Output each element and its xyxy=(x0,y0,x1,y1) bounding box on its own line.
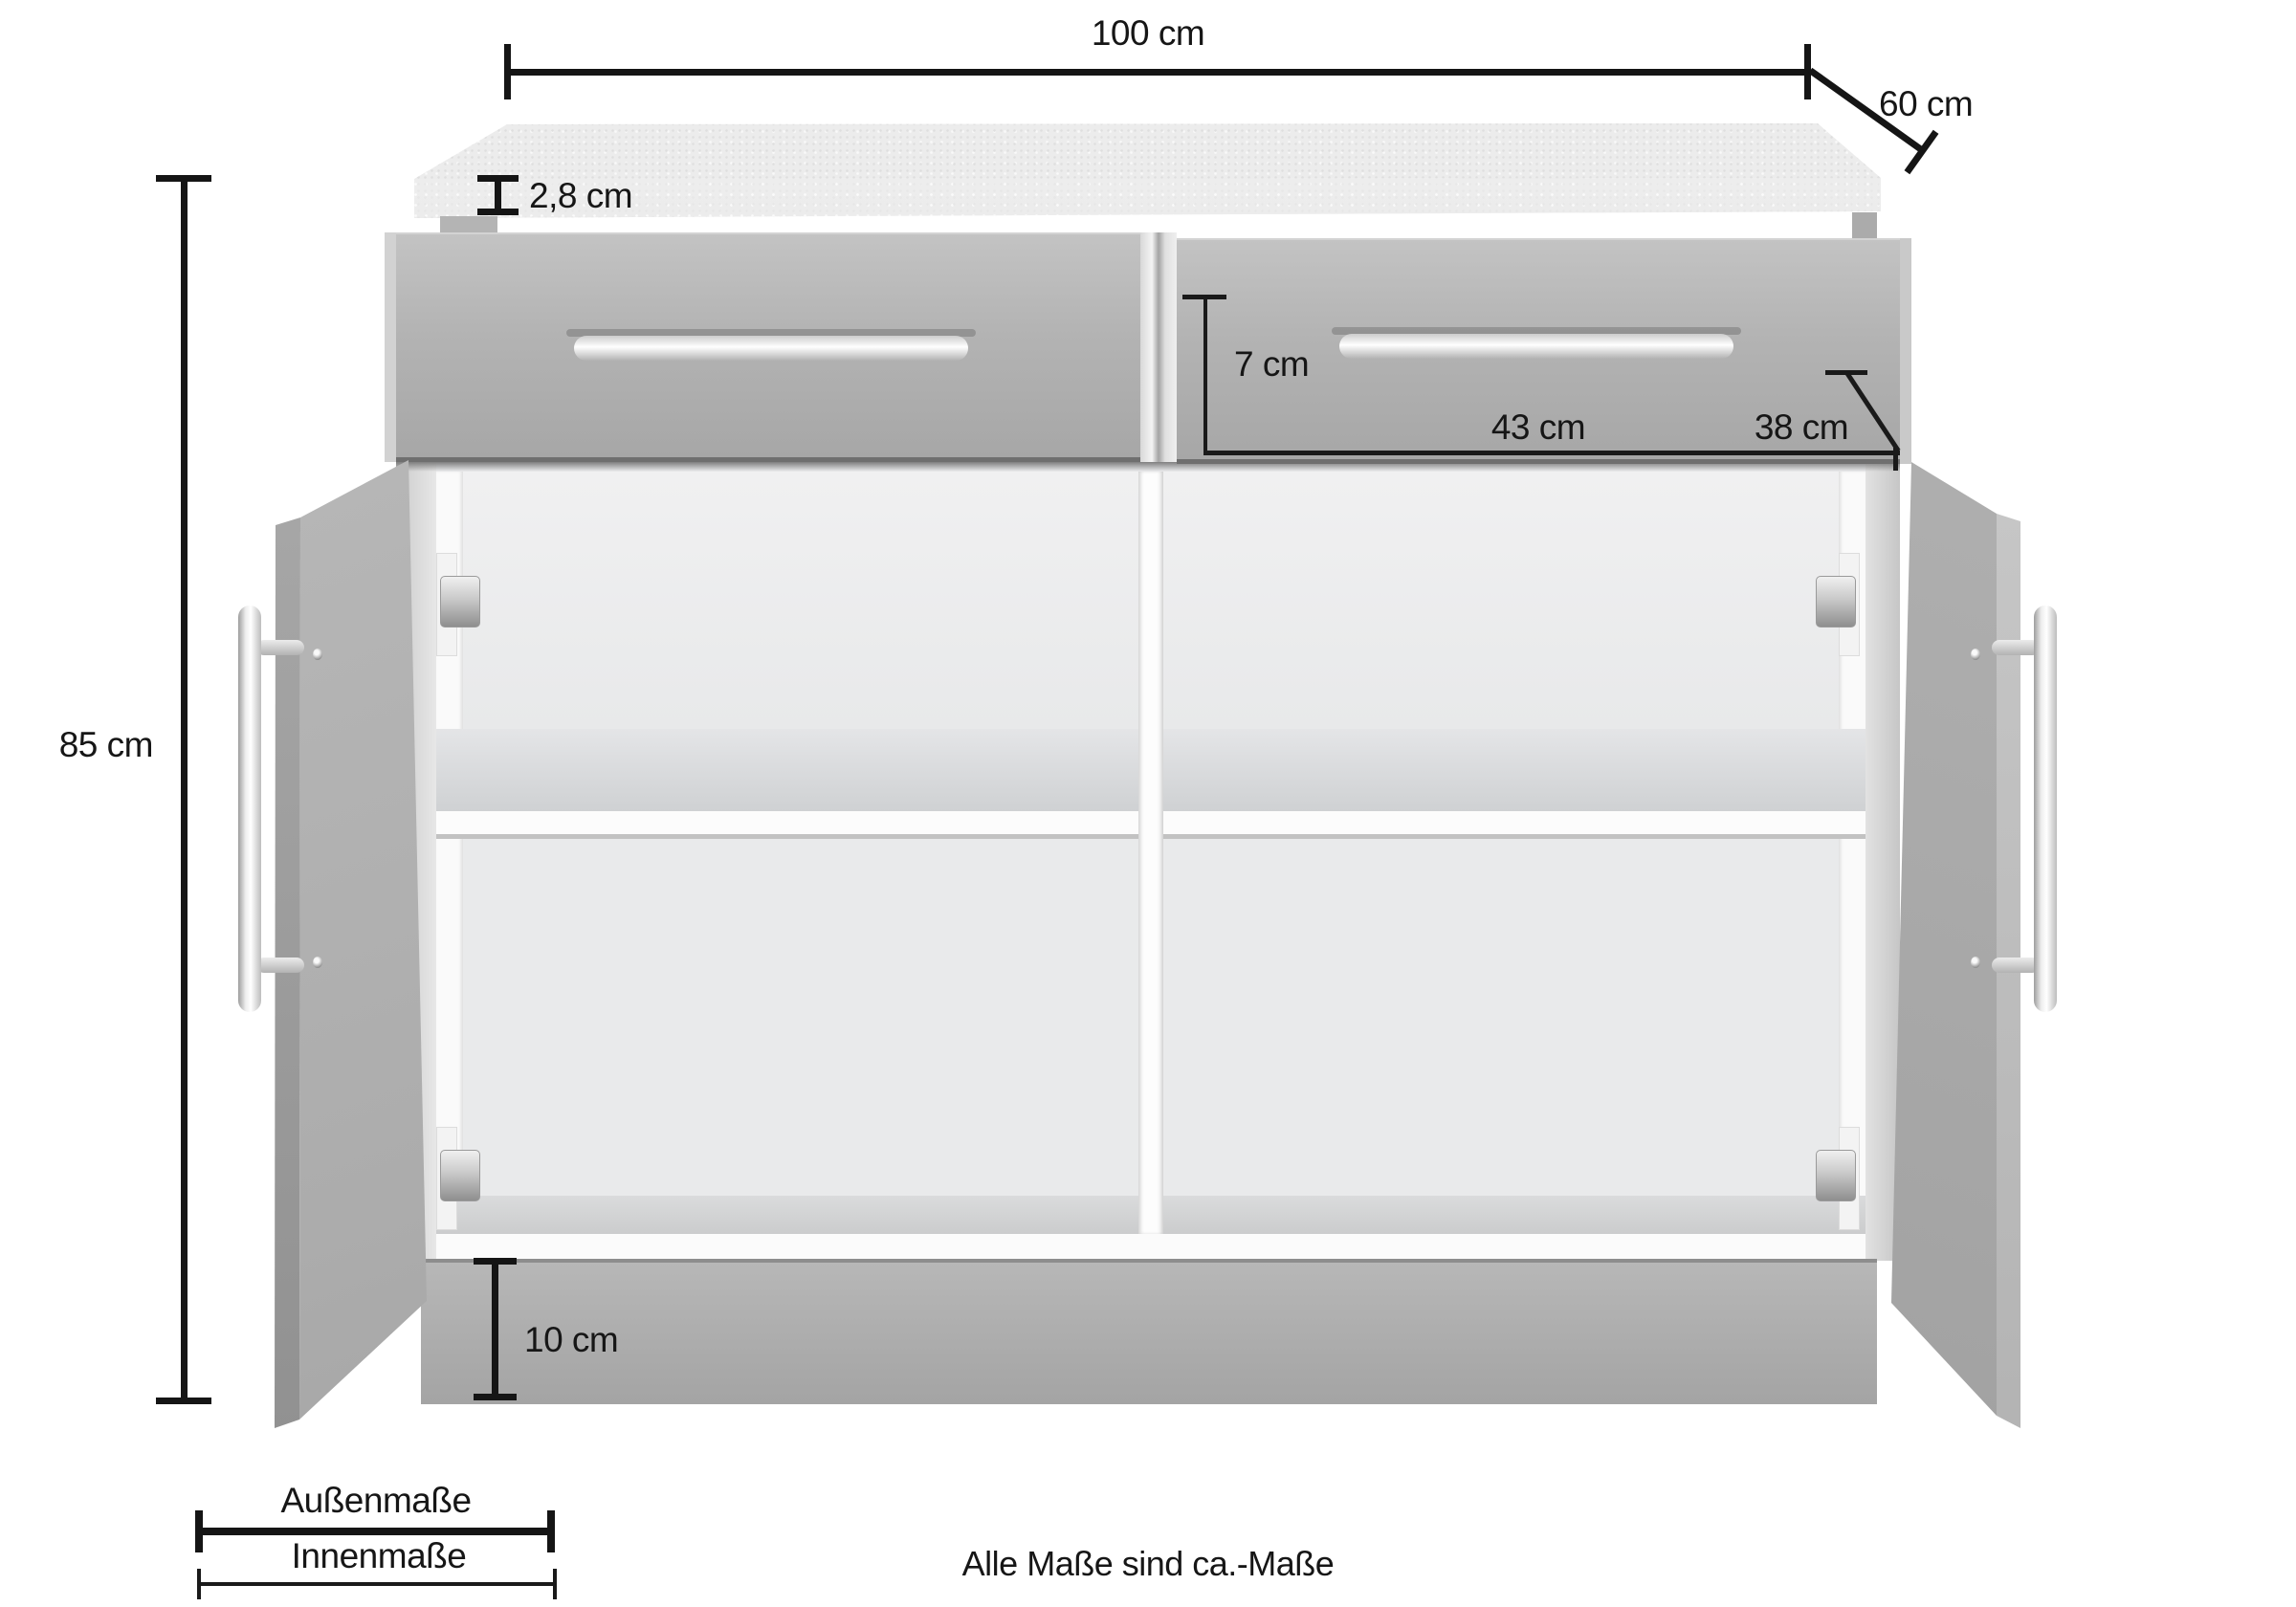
door-handle-stub-left-upper xyxy=(256,640,304,655)
legend-inner-line xyxy=(197,1582,557,1586)
dim-label-depth: 60 cm xyxy=(1879,84,1973,124)
door-handle-stub-right-upper xyxy=(1992,640,2040,655)
dim-tick-drawer-depth-top xyxy=(1825,370,1867,375)
legend-outer-label: Außenmaße xyxy=(201,1481,551,1521)
door-handle-right xyxy=(2034,605,2057,1012)
dim-cap-plinth-top xyxy=(474,1258,517,1265)
dim-label-plinth: 10 cm xyxy=(524,1320,618,1360)
hinge-right-upper xyxy=(1816,576,1856,627)
dim-label-width: 100 cm xyxy=(1052,13,1244,54)
dim-line-width xyxy=(507,69,1810,76)
door-handle-left xyxy=(238,605,261,1012)
dim-line-drawer-width xyxy=(1203,451,1900,455)
dim-line-height xyxy=(181,178,188,1404)
drawer-gap xyxy=(1140,232,1177,462)
legend-inner-tick-right xyxy=(553,1569,557,1599)
dim-label-drawer-height: 7 cm xyxy=(1234,344,1309,385)
dim-tick-drawer-depth-end xyxy=(1893,448,1898,471)
legend-inner-tick-left xyxy=(197,1569,201,1599)
door-handle-stub-right-lower xyxy=(1992,958,2040,973)
plinth xyxy=(421,1259,1877,1404)
door-left-screw-lower xyxy=(313,957,322,968)
door-left-screw-upper xyxy=(313,649,322,660)
dimension-diagram: 100 cm 60 cm 85 cm 2,8 cm 7 cm 43 cm 38 … xyxy=(0,0,2296,1607)
right-side-panel-edge xyxy=(1900,238,1911,464)
legend-inner-label: Innenmaße xyxy=(201,1536,557,1576)
dim-tick-height-bottom xyxy=(156,1398,211,1404)
drawer-handle-left xyxy=(574,336,968,361)
dim-label-height: 85 cm xyxy=(29,725,153,765)
dim-line-drawer-height xyxy=(1203,297,1207,453)
hinge-right-lower xyxy=(1816,1150,1856,1201)
dim-label-drawer-width: 43 cm xyxy=(1462,407,1615,448)
door-handle-stub-left-lower xyxy=(256,958,304,973)
legend-outer-line xyxy=(199,1528,551,1535)
dim-tick-height-top xyxy=(156,175,211,182)
door-right-screw-lower xyxy=(1971,957,1980,968)
bottom-panel-front-edge xyxy=(436,1234,1865,1261)
dim-line-plinth xyxy=(492,1261,498,1400)
dim-label-countertop: 2,8 cm xyxy=(529,176,632,216)
center-divider xyxy=(1138,472,1163,1234)
dim-tick-drawer-height-top xyxy=(1182,295,1226,299)
hinge-left-lower xyxy=(440,1150,480,1201)
hinge-left-upper xyxy=(440,576,480,627)
dim-cap-plinth-bottom xyxy=(474,1394,517,1400)
left-side-panel-edge xyxy=(385,232,396,462)
dim-cap-countertop-bottom xyxy=(477,209,519,215)
right-wall-edge xyxy=(1865,462,1900,1261)
dim-tick-width-left xyxy=(504,44,511,99)
door-right-screw-upper xyxy=(1971,649,1980,660)
dim-label-drawer-depth: 38 cm xyxy=(1730,407,1873,448)
dim-cap-countertop-top xyxy=(477,175,519,182)
countertop-spacer-right xyxy=(1852,212,1877,240)
drawer-handle-right xyxy=(1339,334,1733,359)
footnote: Alle Maße sind ca.-Maße xyxy=(909,1544,1387,1584)
